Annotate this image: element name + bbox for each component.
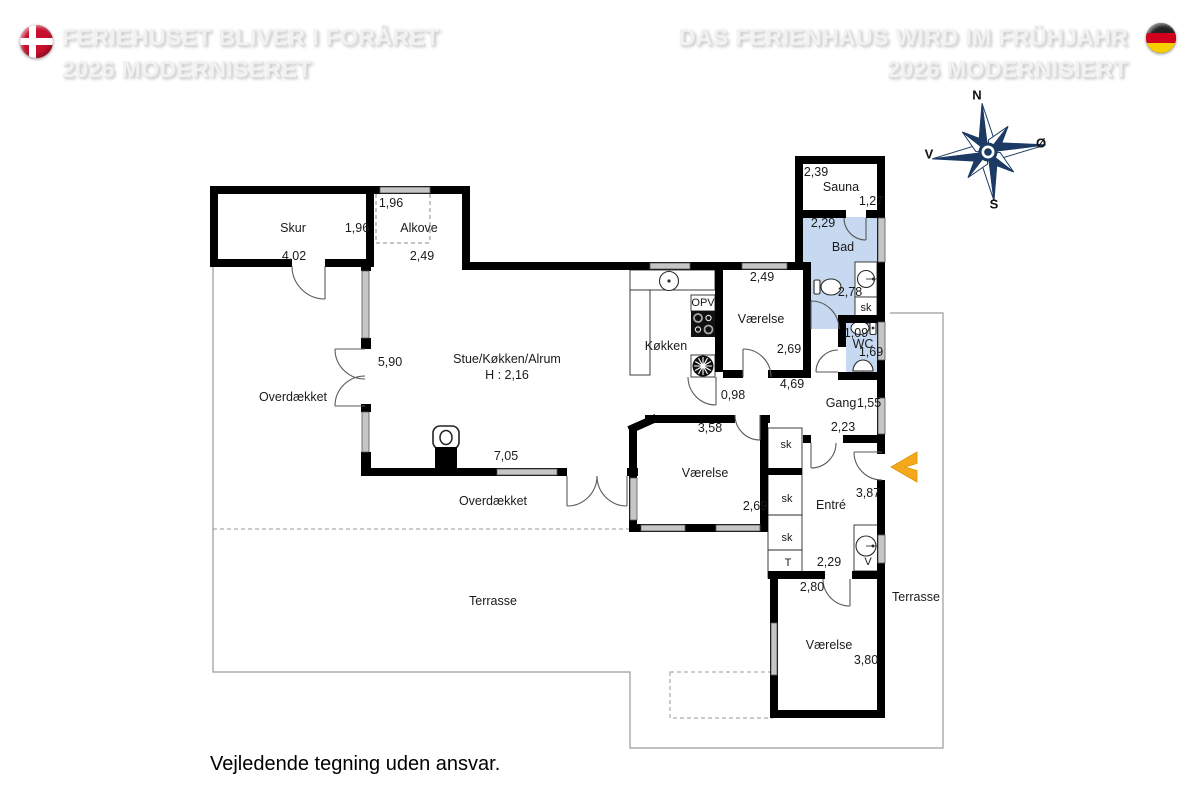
wc-toilet-icon — [851, 322, 876, 335]
terrace-outline — [213, 267, 943, 748]
disclaimer-text: Vejledende tegning uden ansvar. — [210, 753, 500, 776]
stove-icon — [691, 311, 715, 337]
washing-machine-icon — [856, 536, 877, 556]
toilet-icon — [814, 279, 841, 295]
dishwasher-icon — [691, 295, 715, 311]
extractor-fan-icon — [691, 355, 715, 377]
entrance-arrow-icon — [891, 452, 917, 482]
kitchen-fixtures — [630, 264, 715, 377]
floorplan-page: FERIEHUSET BLIVER I FORÅRET 2026 MODERNI… — [0, 0, 1200, 800]
compass-rose-icon — [926, 96, 1051, 207]
floorplan-drawing — [0, 0, 1200, 800]
fireplace-icon — [433, 426, 459, 472]
